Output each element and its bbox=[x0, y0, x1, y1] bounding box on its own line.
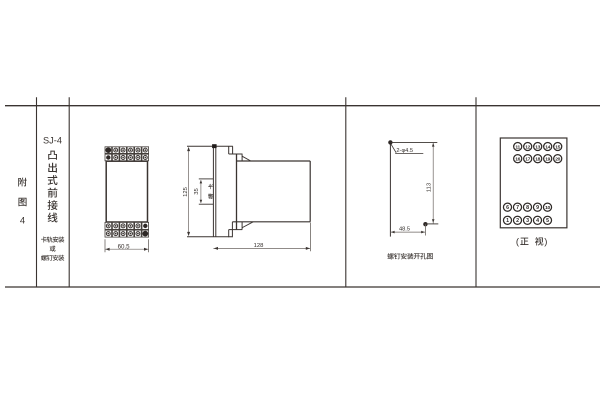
svg-text:16: 16 bbox=[515, 157, 520, 163]
svg-text:7: 7 bbox=[516, 205, 519, 211]
svg-text:15: 15 bbox=[555, 144, 560, 150]
svg-text:60.5: 60.5 bbox=[118, 244, 131, 251]
svg-text:18: 18 bbox=[535, 157, 540, 163]
svg-text:113: 113 bbox=[426, 182, 432, 192]
svg-text:10: 10 bbox=[545, 205, 550, 211]
svg-text:): ) bbox=[544, 237, 547, 248]
svg-text:17: 17 bbox=[525, 157, 530, 163]
svg-text:19: 19 bbox=[545, 157, 550, 163]
svg-text:128: 128 bbox=[254, 243, 265, 249]
svg-text:SJ-4: SJ-4 bbox=[43, 136, 62, 146]
svg-text:4: 4 bbox=[20, 215, 25, 226]
svg-text:9: 9 bbox=[536, 205, 539, 211]
svg-text:12: 12 bbox=[525, 144, 530, 150]
svg-text:14: 14 bbox=[545, 144, 550, 150]
svg-text:11: 11 bbox=[515, 144, 520, 150]
svg-text:2-φ4.5: 2-φ4.5 bbox=[396, 148, 413, 154]
svg-text:8: 8 bbox=[526, 205, 529, 211]
svg-text:6: 6 bbox=[506, 205, 509, 211]
svg-text:13: 13 bbox=[535, 144, 540, 150]
svg-text:20: 20 bbox=[555, 157, 560, 163]
svg-text:1: 1 bbox=[506, 218, 509, 224]
svg-text:35: 35 bbox=[194, 188, 200, 195]
svg-text:48.5: 48.5 bbox=[399, 227, 410, 233]
svg-text:4: 4 bbox=[536, 218, 539, 224]
svg-text:5: 5 bbox=[546, 218, 549, 224]
svg-text:125: 125 bbox=[183, 186, 189, 197]
svg-text:3: 3 bbox=[526, 218, 529, 224]
svg-text:2: 2 bbox=[516, 218, 519, 224]
